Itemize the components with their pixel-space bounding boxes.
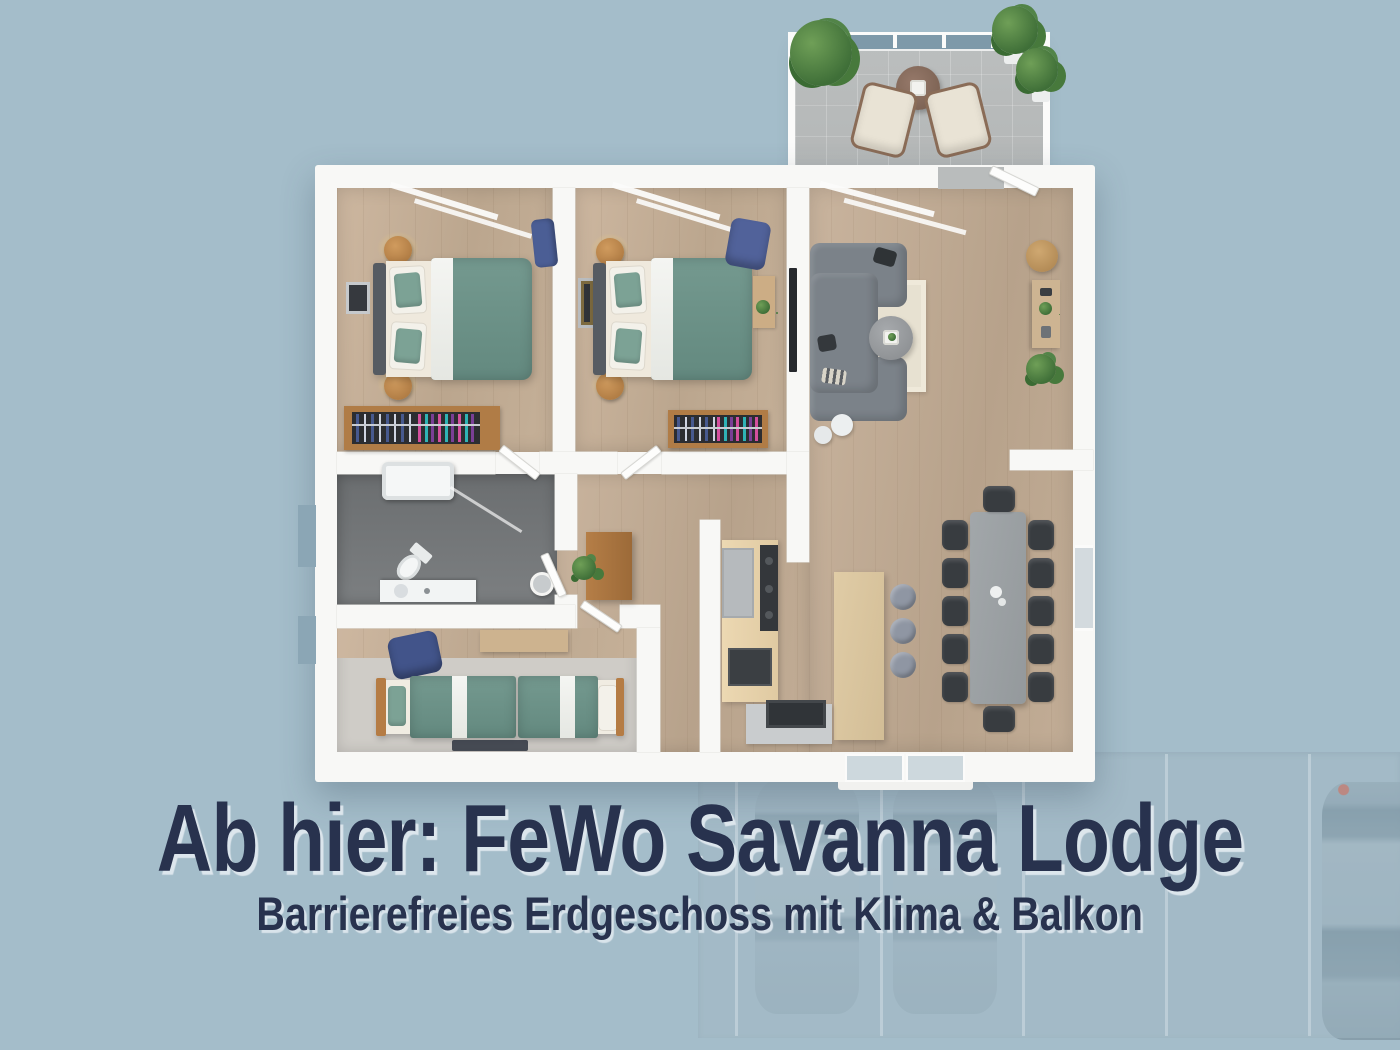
dining-chair-head xyxy=(983,486,1015,512)
pillow-teal xyxy=(394,328,423,364)
tray-plant xyxy=(888,333,896,341)
dining-chair xyxy=(1028,634,1054,664)
wall-living-dining-stub xyxy=(1010,450,1093,470)
console-sideboard xyxy=(1032,280,1060,348)
dining-chair xyxy=(1028,520,1054,550)
side-table-round xyxy=(1026,240,1058,272)
dining-chair xyxy=(942,596,968,626)
wall-bathroom-east-a xyxy=(555,474,577,550)
dining-chair-head xyxy=(983,706,1015,732)
pillow-teal xyxy=(388,686,406,726)
exterior-window-tab xyxy=(298,505,316,567)
faucet xyxy=(424,588,430,594)
bed-single-1 xyxy=(376,676,516,738)
floorplan-poster: Ab hier: FeWo Savanna Lodge Barrierefrei… xyxy=(0,0,1400,1050)
entry-glass-door xyxy=(906,754,965,782)
dining-window xyxy=(1075,545,1093,631)
sofa-pillow xyxy=(817,334,838,353)
console-plant xyxy=(1039,302,1052,315)
hanging-clothes xyxy=(356,414,414,442)
wall-bedrooms-south-b xyxy=(540,452,617,474)
poster-title-text: Ab hier: FeWo Savanna Lodge xyxy=(157,784,1243,894)
pillow-teal xyxy=(394,272,423,308)
bedroom3-rug xyxy=(452,740,528,751)
hall-plant xyxy=(572,556,596,580)
clothes-rail xyxy=(674,427,762,429)
poster-title: Ab hier: FeWo Savanna Lodge xyxy=(0,784,1400,894)
bed-headboard xyxy=(593,263,606,375)
dining-chair xyxy=(942,520,968,550)
sink-basin xyxy=(394,584,408,598)
bathtub xyxy=(382,462,454,500)
desk-plant xyxy=(756,300,770,314)
poster-subtitle: Barrierefreies Erdgeschoss mit Klima & B… xyxy=(0,886,1400,941)
wardrobe-1 xyxy=(344,406,500,450)
bed-double-1 xyxy=(373,258,532,380)
railing-post xyxy=(893,32,897,48)
burner xyxy=(765,611,773,619)
oven-unit xyxy=(728,648,772,686)
bed-sheet-fold xyxy=(452,676,467,738)
wall-bedroom3-east xyxy=(637,628,660,752)
balcony-plant-right-2 xyxy=(1016,48,1058,92)
burner xyxy=(765,557,773,565)
kitchen-island xyxy=(834,572,884,740)
wall-hall-dining xyxy=(787,452,809,562)
armchair-blue xyxy=(531,218,559,268)
wardrobe-2 xyxy=(668,410,768,448)
refrigerator xyxy=(722,548,754,618)
console-decor xyxy=(1040,288,1052,296)
dining-table xyxy=(970,512,1026,704)
hanging-clothes xyxy=(717,417,759,441)
nesting-table xyxy=(831,414,853,436)
dining-chair xyxy=(942,558,968,588)
dining-chair xyxy=(942,634,968,664)
living-plant xyxy=(1026,354,1056,384)
dining-chair xyxy=(1028,672,1054,702)
armchair-blue xyxy=(724,217,772,271)
console-decor xyxy=(1041,326,1051,338)
pillow-teal xyxy=(614,272,643,308)
entry-glass-door xyxy=(845,754,904,782)
pillow xyxy=(598,685,618,731)
clothes-rail xyxy=(352,424,480,426)
dining-chair xyxy=(1028,596,1054,626)
bar-stool xyxy=(890,618,916,644)
exterior-window-tab xyxy=(298,616,316,664)
bar-stool xyxy=(890,652,916,678)
bed-double-2 xyxy=(593,258,752,380)
sofa-pillow xyxy=(821,367,847,385)
cooktop xyxy=(760,545,778,631)
bed-sheet-fold xyxy=(651,258,673,380)
balcony-plant-left xyxy=(790,20,852,86)
bathroom-vanity xyxy=(380,580,476,602)
pillow-teal xyxy=(614,328,643,364)
bed-sheet-fold xyxy=(431,258,453,380)
hanging-clothes xyxy=(418,414,476,442)
burner xyxy=(765,585,773,593)
dining-chair xyxy=(942,672,968,702)
kitchen-sink xyxy=(766,700,826,728)
bed-frame xyxy=(376,678,386,736)
bedroom3-desk xyxy=(480,630,568,652)
tv-wall-mounted xyxy=(789,268,797,372)
wall-bedroom1-bedroom2 xyxy=(553,188,575,452)
wall-kitchen-west xyxy=(700,520,720,752)
bed-headboard xyxy=(373,263,386,375)
railing-post xyxy=(942,32,946,48)
balcony-plant-right-1 xyxy=(992,6,1038,54)
bed-duvet xyxy=(518,676,598,738)
bed-sheet-fold xyxy=(560,676,575,738)
wall-art xyxy=(346,282,370,314)
bed-frame xyxy=(616,678,624,736)
hanging-clothes xyxy=(677,417,715,441)
dining-chair xyxy=(1028,558,1054,588)
nesting-table xyxy=(814,426,832,444)
bar-stool xyxy=(890,584,916,610)
poster-subtitle-text: Barrierefreies Erdgeschoss mit Klima & B… xyxy=(257,886,1143,941)
table-centerpiece xyxy=(990,586,1002,598)
wall-bedroom3-north-b xyxy=(620,605,660,628)
bed-single-2 xyxy=(518,676,624,738)
wall-bedroom3-north-a xyxy=(337,605,575,628)
